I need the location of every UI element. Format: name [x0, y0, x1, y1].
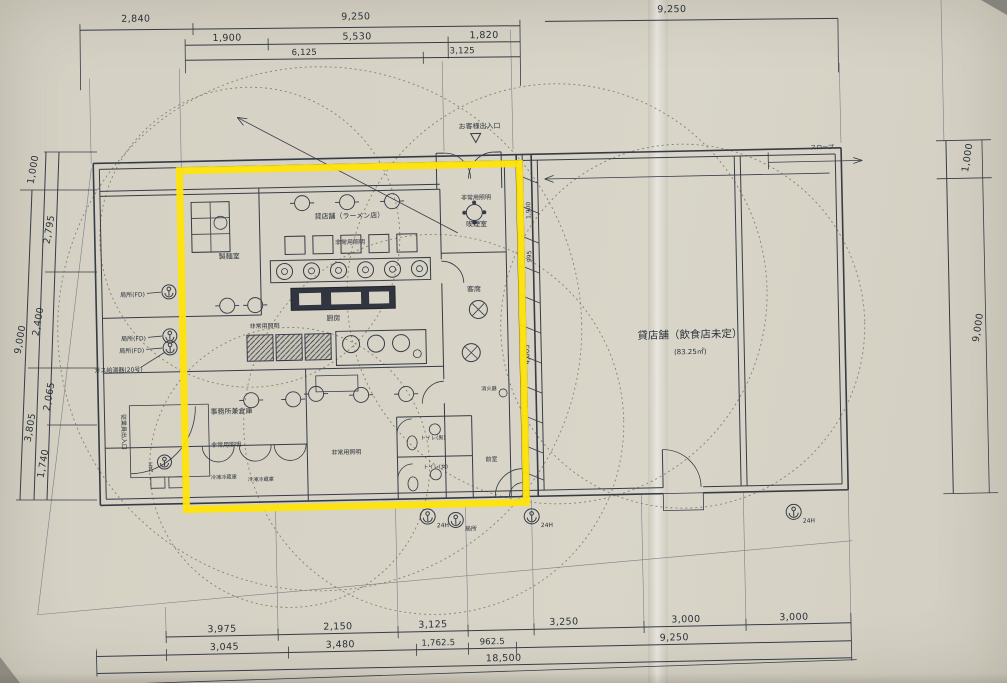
dim-bottom1-3250: 3,250 [549, 616, 578, 628]
label-local-fd-2: 局所(FD) [121, 334, 146, 343]
fan-icon [162, 285, 176, 299]
entrance-marker [471, 133, 481, 142]
top-dimensions: 2,840 9,250 1,900 5,530 1,820 6,125 3,12… [80, 2, 839, 90]
label-slope: スロープ [810, 144, 834, 151]
dim-bottom2-17625: 1,762.5 [421, 638, 455, 649]
label-emergency-light-3: 非常用照明 [250, 322, 280, 331]
dim-left-2065: 2,065 [42, 381, 58, 412]
interior-walls-left-tenant [99, 152, 523, 506]
fan-icon [786, 504, 801, 519]
dim-left-1740: 1,740 [36, 448, 52, 479]
room-label-seating: 客席 [467, 284, 481, 293]
label-fan-local: 局所 [465, 525, 477, 533]
room-label-toilet-f: トイレ(女) [423, 462, 448, 471]
room-label-office-storage: 事務所兼倉庫 [210, 406, 252, 416]
dim-bottom1-3125: 3,125 [418, 619, 447, 631]
dim-top2-1820: 1,820 [469, 30, 498, 41]
dim-top3-3125: 3,125 [450, 46, 475, 56]
label-emergency-light-2: 非常用照明 [461, 193, 491, 202]
dim-top3-6125: 6,125 [292, 48, 317, 58]
right-dimensions: 1,000 9,000 [936, 140, 998, 494]
dim-bottom1-2150: 2,150 [323, 621, 352, 633]
room-label-vacant-shop-area: (83.25㎡) [674, 348, 707, 357]
label-fan-24h-3: 24H [803, 517, 815, 524]
fan-icon [157, 455, 171, 469]
room-label-anteroom: 前室 [485, 455, 497, 463]
dim-topright-9250: 9,250 [657, 4, 686, 15]
dim-interior-995: 995 [526, 250, 533, 262]
room-label-smoking-room: 喫煙室 [466, 219, 487, 228]
dim-bottom-total-18500: 18,500 [486, 653, 522, 665]
room-label-noodle-room: 製麺室 [219, 251, 240, 260]
dim-right-9000: 9,000 [971, 312, 986, 343]
dim-left-2400: 2,400 [31, 306, 47, 337]
dim-bottom2-3480: 3,480 [326, 639, 355, 651]
dim-right-1000: 1,000 [960, 142, 975, 173]
dimension-extension-lines [83, 0, 955, 677]
fan-icons [139, 272, 802, 534]
left-dimensions: 1,000 2,795 2,400 9,000 2,065 3,805 1,74… [13, 152, 97, 500]
photo-of-floor-plan: 3,975 2,150 3,125 3,250 3,000 3,000 3,04… [0, 0, 1007, 683]
dim-bottom1-3000b: 3,000 [779, 612, 808, 624]
dim-bottom2-9250: 9,250 [660, 632, 689, 644]
label-emergency-light-4: 非常用照明 [211, 440, 241, 449]
floor-plan-drawing: 3,975 2,150 3,125 3,250 3,000 3,000 3,04… [0, 0, 1007, 683]
dim-top1-9250: 9,250 [341, 11, 370, 22]
label-local-fd-3: 局所(FD) [119, 346, 144, 355]
dim-interior-1900: 1,900 [525, 202, 532, 220]
counter-stools [276, 261, 427, 280]
label-local-fd-1: 局所(FD) [120, 290, 145, 299]
room-label-fridge-b: 冷凍冷蔵庫 [248, 475, 274, 484]
label-fan-24h-4: 24H [148, 462, 154, 473]
dim-top2-1900: 1,900 [212, 33, 241, 44]
label-fan-24h-1: 24H [437, 522, 449, 529]
dim-left-1000: 1,000 [26, 154, 42, 185]
label-gas-heater: ガス給湯器(20号) [94, 365, 142, 374]
fan-icon [163, 341, 177, 355]
label-emergency-light-1: 非常用照明 [335, 238, 365, 247]
label-fire-extinguisher: 消火器 [481, 384, 498, 392]
label-employee-entrance: 従業員出入口 [119, 414, 128, 450]
room-label-vacant-shop: 貸店舗（飲食店未定） [637, 327, 742, 342]
dim-top2-5530: 5,530 [342, 31, 371, 42]
label-fan-24h-2: 24H [541, 522, 553, 529]
fan-icon [448, 512, 463, 527]
label-emergency-light-5: 非常用照明 [331, 448, 361, 457]
room-label-kitchen: 厨房 [326, 313, 340, 322]
dim-top1-2840: 2,840 [121, 14, 150, 25]
fan-icon [420, 509, 435, 524]
layout-guide-circles [52, 55, 870, 622]
room-label-fridge-a: 冷凍冷蔵庫 [211, 473, 237, 482]
room-label-ramen-shop: 貸店舗（ラーメン店） [314, 210, 384, 220]
dim-bottom2-3045: 3,045 [210, 642, 239, 654]
dim-bottom1-3000a: 3,000 [671, 614, 700, 626]
photo-bottom-shadow [0, 673, 1007, 683]
photo-corner-dark-topright [981, 0, 1007, 15]
room-label-toilet-m: トイレ(男) [421, 434, 446, 442]
dim-bottom2-9625: 962.5 [480, 637, 506, 648]
dim-bottom1-3975: 3,975 [207, 624, 236, 636]
label-customer-entrance: お客様出入口 [458, 121, 500, 131]
